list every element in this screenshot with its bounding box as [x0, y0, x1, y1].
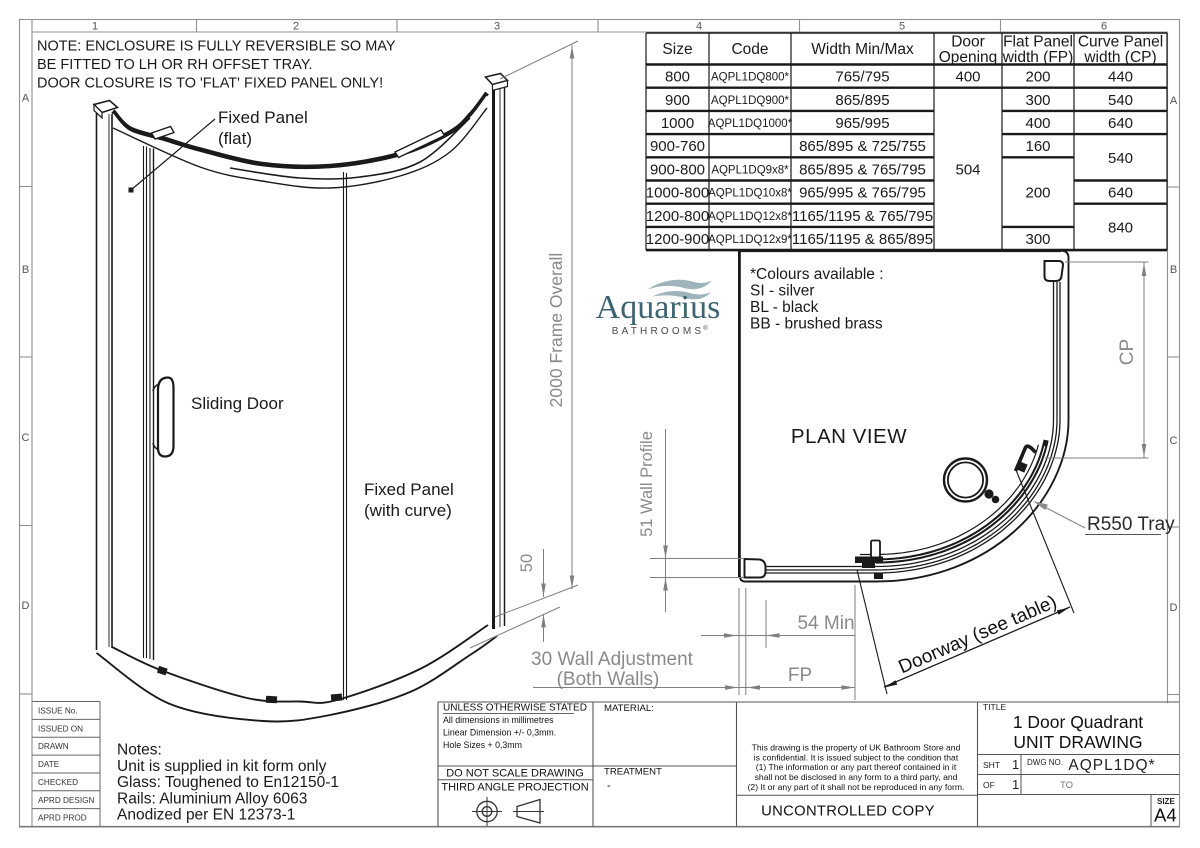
- svg-text:900-760: 900-760: [650, 138, 705, 155]
- svg-text:FP: FP: [788, 665, 812, 686]
- svg-text:6: 6: [1101, 21, 1107, 33]
- svg-text:-: -: [607, 780, 611, 792]
- svg-text:1000-800: 1000-800: [646, 185, 709, 202]
- svg-text:5: 5: [899, 21, 905, 33]
- svg-text:865/895 & 725/755: 865/895 & 725/755: [799, 138, 926, 155]
- svg-text:1200-900: 1200-900: [646, 231, 709, 248]
- svg-text:Fixed Panel: Fixed Panel: [364, 480, 454, 499]
- svg-text:This drawing is the property o: This drawing is the property of UK Bathr…: [752, 743, 961, 753]
- svg-text:APRD DESIGN: APRD DESIGN: [38, 796, 95, 805]
- svg-text:865/895 & 765/795: 865/895 & 765/795: [799, 161, 926, 178]
- svg-text:TITLE: TITLE: [983, 702, 1006, 712]
- svg-text:NOTE: ENCLOSURE IS FULLY REVER: NOTE: ENCLOSURE IS FULLY REVERSIBLE SO M…: [37, 39, 396, 55]
- svg-text:®: ®: [703, 324, 708, 332]
- svg-text:(with curve): (with curve): [364, 501, 452, 520]
- svg-text:965/995: 965/995: [835, 115, 889, 132]
- svg-text:Sliding Door: Sliding Door: [191, 394, 284, 413]
- svg-text:MATERIAL:: MATERIAL:: [604, 703, 654, 714]
- svg-text:DRAWN: DRAWN: [38, 742, 69, 751]
- svg-text:Hole Sizes + 0,3mm: Hole Sizes + 0,3mm: [443, 740, 522, 750]
- svg-text:DO NOT SCALE DRAWING: DO NOT SCALE DRAWING: [446, 768, 584, 780]
- svg-text:1165/1195 & 865/895: 1165/1195 & 865/895: [792, 231, 933, 248]
- svg-text:ISSUE No.: ISSUE No.: [38, 707, 78, 716]
- svg-text:AQPL1DQ10x8*: AQPL1DQ10x8*: [708, 188, 792, 200]
- svg-text:1000: 1000: [661, 115, 694, 132]
- svg-text:AQPL1DQ800*: AQPL1DQ800*: [711, 72, 790, 84]
- svg-text:(1) The information or any par: (1) The information or any part thereof …: [756, 762, 957, 772]
- svg-text:50: 50: [518, 554, 536, 572]
- svg-text:540: 540: [1108, 92, 1133, 109]
- svg-text:A: A: [1170, 95, 1178, 107]
- svg-text:PLAN VIEW: PLAN VIEW: [791, 425, 907, 448]
- svg-text:Code: Code: [731, 41, 768, 58]
- svg-text:Unit is supplied in kit form o: Unit is supplied in kit form only: [117, 758, 327, 775]
- svg-text:DOOR CLOSURE IS TO 'FLAT' FIXE: DOOR CLOSURE IS TO 'FLAT' FIXED PANEL ON…: [37, 76, 383, 92]
- svg-text:865/895: 865/895: [835, 92, 889, 109]
- svg-text:Opening: Opening: [939, 49, 998, 66]
- svg-text:BATHROOMS: BATHROOMS: [612, 326, 705, 337]
- svg-text:54 Min: 54 Min: [797, 613, 854, 634]
- svg-text:Curve Panel: Curve Panel: [1078, 34, 1163, 51]
- svg-text:D: D: [1170, 602, 1178, 614]
- svg-text:1: 1: [1012, 757, 1019, 772]
- svg-text:(2) It or any part of it shall: (2) It or any part of it shall not be re…: [748, 782, 965, 792]
- svg-text:Aquarius: Aquarius: [596, 289, 721, 326]
- svg-text:Flat Panel: Flat Panel: [1003, 34, 1073, 51]
- svg-text:440: 440: [1108, 69, 1133, 86]
- svg-text:Size: Size: [662, 41, 692, 58]
- svg-text:800: 800: [665, 69, 690, 86]
- svg-text:200: 200: [1025, 69, 1050, 86]
- svg-text:OF: OF: [983, 780, 995, 790]
- svg-text:Width Min/Max: Width Min/Max: [811, 41, 914, 58]
- svg-text:DWG NO.: DWG NO.: [1027, 758, 1063, 767]
- svg-text:BL - black: BL - black: [750, 299, 819, 316]
- svg-text:AQPL1DQ900*: AQPL1DQ900*: [711, 95, 790, 107]
- svg-text:BB - brushed brass: BB - brushed brass: [750, 316, 883, 333]
- svg-text:SI - silver: SI - silver: [750, 283, 815, 300]
- svg-text:30 Wall Adjustment: 30 Wall Adjustment: [531, 649, 694, 670]
- svg-text:1 Door Quadrant: 1 Door Quadrant: [1013, 712, 1143, 732]
- svg-text:51 Wall Profile: 51 Wall Profile: [638, 431, 656, 537]
- svg-text:2000 Frame Overall: 2000 Frame Overall: [546, 253, 566, 408]
- svg-text:shall not be disclosed in any: shall not be disclosed in any form to a …: [755, 772, 958, 782]
- svg-text:width (FP): width (FP): [1002, 49, 1074, 66]
- svg-text:1165/1195 & 765/795: 1165/1195 & 765/795: [792, 208, 933, 225]
- svg-text:(flat): (flat): [218, 129, 252, 148]
- svg-text:Glass: Toughened to En12150-1: Glass: Toughened to En12150-1: [117, 774, 339, 791]
- svg-text:400: 400: [955, 69, 980, 86]
- svg-text:Linear Dimension +/- 0,3mm.: Linear Dimension +/- 0,3mm.: [443, 728, 556, 738]
- svg-text:Fixed Panel: Fixed Panel: [218, 108, 308, 127]
- svg-text:Anodized per EN 12373-1: Anodized per EN 12373-1: [117, 807, 295, 824]
- svg-text:THIRD ANGLE PROJECTION: THIRD ANGLE PROJECTION: [441, 782, 588, 794]
- svg-text:A: A: [22, 93, 30, 105]
- svg-text:TO: TO: [1060, 780, 1073, 791]
- svg-text:AQPL1DQ12x8*: AQPL1DQ12x8*: [708, 211, 792, 223]
- svg-text:DATE: DATE: [38, 760, 60, 769]
- svg-text:D: D: [22, 600, 30, 612]
- svg-text:Door: Door: [951, 34, 985, 51]
- svg-text:AQPL1DQ12x9*: AQPL1DQ12x9*: [708, 234, 792, 246]
- svg-text:APRD PROD: APRD PROD: [38, 814, 87, 823]
- svg-text:200: 200: [1025, 185, 1050, 202]
- svg-text:Notes:: Notes:: [117, 742, 162, 759]
- svg-text:C: C: [22, 432, 30, 444]
- svg-text:UNLESS OTHERWISE STATED: UNLESS OTHERWISE STATED: [443, 703, 587, 714]
- svg-text:300: 300: [1025, 231, 1050, 248]
- svg-text:width (CP): width (CP): [1083, 49, 1156, 66]
- svg-text:840: 840: [1108, 219, 1133, 236]
- svg-text:965/995 & 765/795: 965/995 & 765/795: [799, 185, 926, 202]
- svg-text:1200-800: 1200-800: [646, 208, 709, 225]
- svg-text:Rails: Aluminium Alloy 6063: Rails: Aluminium Alloy 6063: [117, 790, 307, 807]
- svg-text:765/795: 765/795: [835, 69, 889, 86]
- svg-text:UNIT DRAWING: UNIT DRAWING: [1013, 732, 1142, 752]
- svg-text:540: 540: [1108, 150, 1133, 167]
- svg-text:1: 1: [1012, 777, 1019, 792]
- svg-text:160: 160: [1025, 138, 1050, 155]
- svg-text:CP: CP: [1117, 339, 1138, 365]
- svg-text:1: 1: [92, 21, 98, 33]
- svg-text:B: B: [22, 264, 29, 276]
- svg-text:640: 640: [1108, 185, 1133, 202]
- svg-text:3: 3: [494, 21, 500, 33]
- svg-text:All dimensions in millimetres: All dimensions in millimetres: [443, 715, 554, 725]
- svg-text:*Colours available :: *Colours available :: [750, 266, 884, 283]
- svg-text:900: 900: [665, 92, 690, 109]
- svg-text:C: C: [1170, 435, 1178, 447]
- svg-text:400: 400: [1025, 115, 1050, 132]
- svg-text:(Both Walls): (Both Walls): [557, 669, 660, 690]
- svg-text:640: 640: [1108, 115, 1133, 132]
- svg-text:CHECKED: CHECKED: [38, 778, 78, 787]
- svg-text:900-800: 900-800: [650, 161, 705, 178]
- svg-text:R550 Tray: R550 Tray: [1087, 514, 1175, 535]
- svg-text:BE FITTED TO LH OR RH OFFSET T: BE FITTED TO LH OR RH OFFSET TRAY.: [37, 57, 313, 73]
- svg-text:504: 504: [955, 161, 980, 178]
- svg-text:TREATMENT: TREATMENT: [604, 767, 662, 778]
- svg-text:AQPL1DQ1000*: AQPL1DQ1000*: [708, 118, 793, 130]
- svg-text:SHT: SHT: [983, 760, 1000, 770]
- svg-text:is confidential. It is issued: is confidential. It is issued subject to…: [754, 752, 959, 762]
- svg-text:ISSUED ON: ISSUED ON: [38, 724, 83, 733]
- svg-text:UNCONTROLLED COPY: UNCONTROLLED COPY: [761, 804, 935, 820]
- svg-text:300: 300: [1025, 92, 1050, 109]
- svg-text:2: 2: [293, 21, 299, 33]
- svg-text:B: B: [1170, 264, 1177, 276]
- svg-text:AQPL1DQ*: AQPL1DQ*: [1068, 757, 1155, 774]
- svg-text:AQPL1DQ9x8*: AQPL1DQ9x8*: [711, 164, 789, 176]
- svg-text:4: 4: [696, 21, 702, 33]
- svg-text:A4: A4: [1154, 805, 1177, 826]
